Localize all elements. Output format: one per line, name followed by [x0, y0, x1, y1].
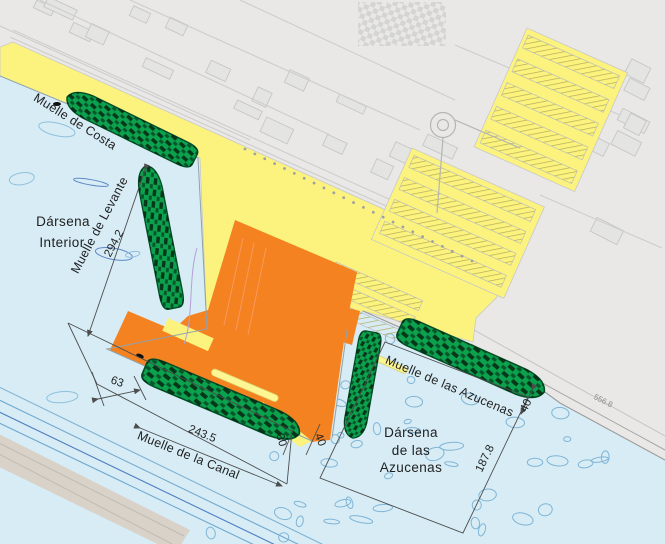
basin-label-darsena-azucenas-line2: de las	[392, 443, 430, 458]
city-block-checker	[358, 2, 446, 46]
basin-label-darsena-interior-line2: Interior	[39, 235, 84, 250]
basin-label-darsena-azucenas-line1: Dársena	[384, 425, 438, 440]
port-plan-canvas: Muelle de Costa Dársena Interior Muelle …	[0, 0, 665, 544]
port-plan-map: Muelle de Costa Dársena Interior Muelle …	[0, 0, 665, 544]
basin-label-darsena-azucenas-line3: Azucenas	[380, 460, 443, 475]
basin-label-darsena-interior-line1: Dársena	[36, 214, 90, 229]
